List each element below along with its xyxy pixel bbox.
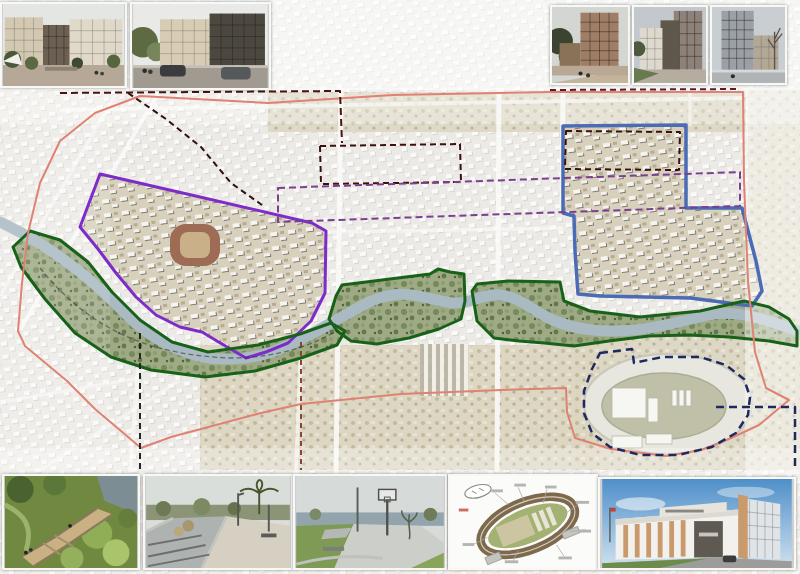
thumb-render-midrise-dusk — [632, 5, 708, 85]
thumb-photo-park-boardwalk — [2, 474, 140, 570]
thumb-photo-river-walkway — [143, 474, 293, 570]
thumb-render-courtyard-residential — [0, 2, 127, 88]
district-stadium — [170, 224, 220, 266]
masterplan-poster — [0, 0, 800, 574]
thumb-diagram-velodrome-plan — [448, 474, 598, 570]
row-buildings-strip — [420, 344, 468, 396]
thumb-render-velodrome-building — [598, 477, 796, 570]
thumb-photo-skatepark-basketball — [293, 474, 447, 570]
thumb-render-brick-tower — [550, 5, 630, 85]
thumb-render-tower-street — [710, 5, 787, 85]
thumb-render-street-residential — [130, 2, 271, 90]
